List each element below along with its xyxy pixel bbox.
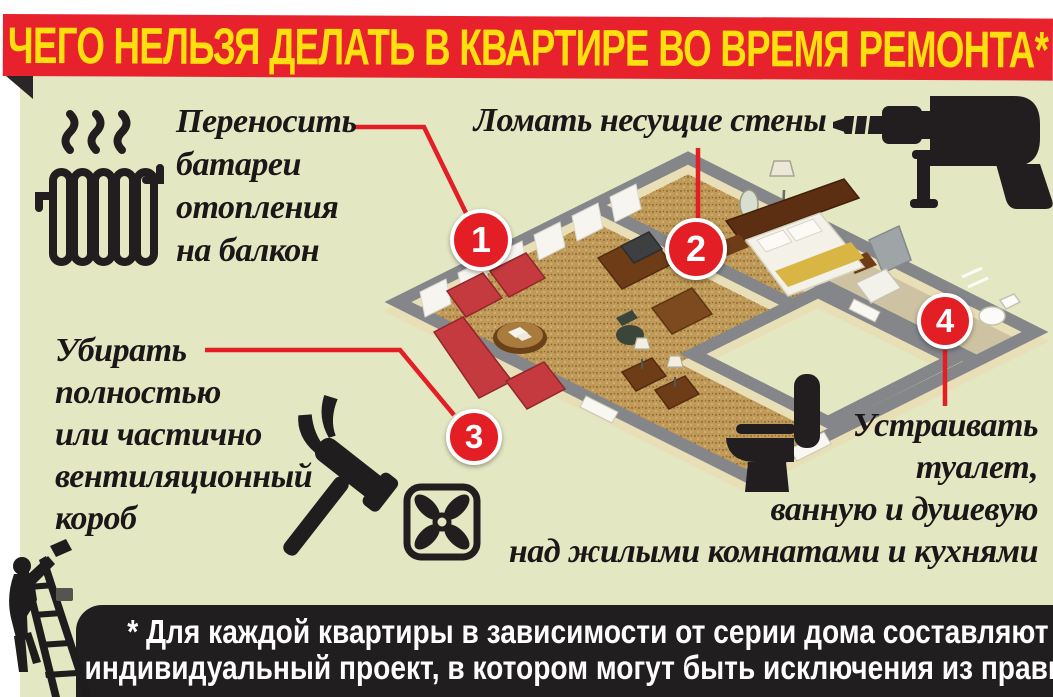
rule-2-text: Ломать несущие стены (430, 99, 870, 142)
rule-2-badge: 2 (665, 218, 727, 280)
rule-1-text: Переносить батареи отопления на балкон (176, 100, 357, 272)
rule-3-text: Убирать полностью или частично вентиляци… (55, 330, 312, 540)
text-line: туалет, (420, 447, 1038, 489)
text-line: ванную и душевую (420, 489, 1038, 531)
rule-3-badge: 3 (446, 409, 502, 465)
text-line: Убирать (55, 330, 312, 372)
rule-4-badge: 4 (917, 293, 973, 349)
text-line: вентиляционный (55, 456, 312, 498)
text-line: на балкон (176, 229, 357, 272)
text-line: Устраивать (420, 405, 1038, 447)
text-line: батареи (176, 143, 357, 186)
text-line: полностью (55, 372, 312, 414)
footnote-line: индивидуальный проект, в котором могут б… (84, 650, 1053, 688)
rule-1-badge: 1 (450, 209, 512, 271)
rule-4-text: Устраивать туалет, ванную и душевую над … (420, 405, 1038, 573)
infographic-poster: ЧЕГО НЕЛЬЗЯ ДЕЛАТЬ В КВАРТИРЕ ВО ВРЕМЯ Р… (0, 0, 1053, 697)
footnote-line: * Для каждой квартиры в зависимости от с… (127, 614, 1048, 652)
text-line: Переносить (176, 100, 357, 143)
text-line: или частично (55, 414, 312, 456)
text-line: короб (55, 498, 312, 540)
text-line: отопления (176, 186, 357, 229)
poster-title: ЧЕГО НЕЛЬЗЯ ДЕЛАТЬ В КВАРТИРЕ ВО ВРЕМЯ Р… (8, 15, 1048, 80)
text-line: Ломать несущие стены (430, 99, 870, 142)
footnote-bar: * Для каждой квартиры в зависимости от с… (76, 605, 1053, 697)
text-line: над жилыми комнатами и кухнями (420, 531, 1038, 573)
title-banner: ЧЕГО НЕЛЬЗЯ ДЕЛАТЬ В КВАРТИРЕ ВО ВРЕМЯ Р… (3, 14, 1053, 81)
